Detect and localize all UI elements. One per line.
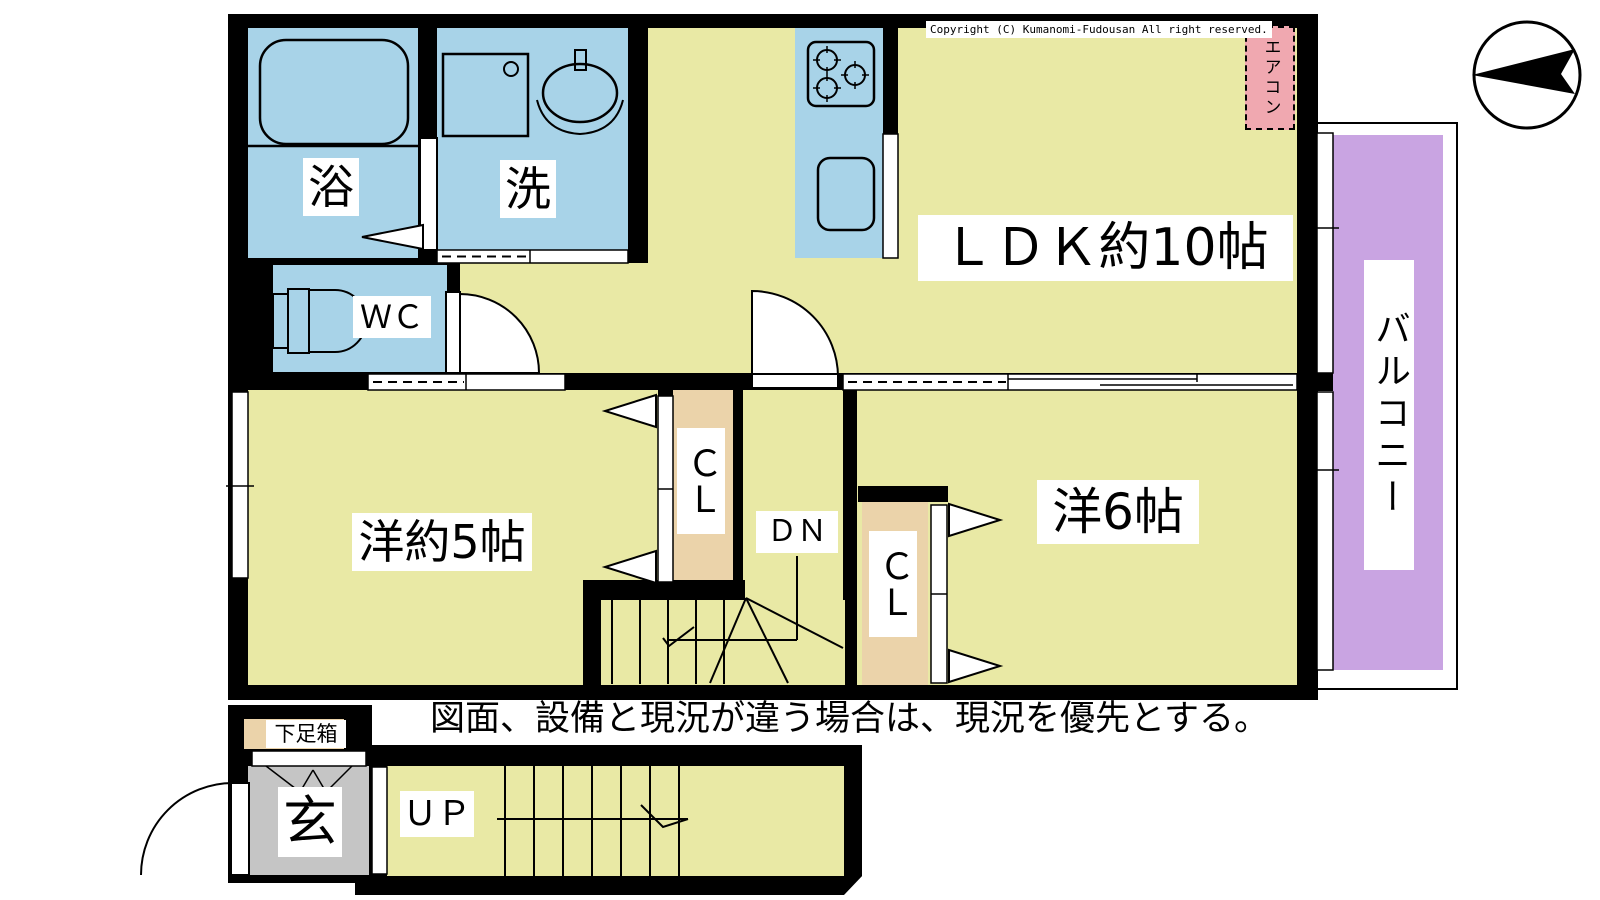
bath-room xyxy=(248,28,418,258)
hallway xyxy=(460,263,648,373)
wall-balcony-junction xyxy=(1297,373,1333,391)
dn-stairs-floor xyxy=(601,600,845,685)
closet-west5-label: ＣＬ xyxy=(677,428,725,534)
entrance-label: 玄 xyxy=(278,787,342,857)
western6-label: 洋6帖 xyxy=(1037,480,1199,544)
disclaimer-text: 図面、設備と現況が違う場合は、現況を優先とする。 xyxy=(430,698,1269,740)
aircon-box: エアコン xyxy=(1245,26,1295,130)
stairs-up-label: ＵＰ xyxy=(400,791,474,837)
washroom-label: 洗 xyxy=(500,160,556,218)
floor-plan: 浴 洗 ＷＣ ＬＤＫ約10帖 洋約5帖 洋6帖 ＣＬ ＣＬ ＤＮ バルコニー エ… xyxy=(0,0,1600,900)
balcony-label: バルコニー xyxy=(1364,260,1414,570)
ldk-label: ＬＤＫ約10帖 xyxy=(918,215,1293,281)
closet-west6-label: ＣＬ xyxy=(869,531,917,637)
ldk-room xyxy=(898,28,1297,373)
western5-label: 洋約5帖 xyxy=(352,513,532,571)
copyright-text: Copyright (C) Kumanomi-Fudousan All righ… xyxy=(926,21,1272,38)
kitchen-floor xyxy=(795,258,898,373)
wall-closet-west6-top xyxy=(858,486,948,502)
wall-stairs-top xyxy=(583,580,745,600)
stairs-down-label: ＤＮ xyxy=(756,511,838,553)
wall-stairs-left xyxy=(583,580,601,685)
compass-icon xyxy=(1472,22,1580,128)
wc-label: ＷＣ xyxy=(353,296,431,338)
shoe-box-label: 下足箱 xyxy=(266,720,346,748)
bath-label: 浴 xyxy=(303,158,359,216)
kitchen-corridor xyxy=(648,28,797,373)
kitchen-counter xyxy=(795,28,883,258)
